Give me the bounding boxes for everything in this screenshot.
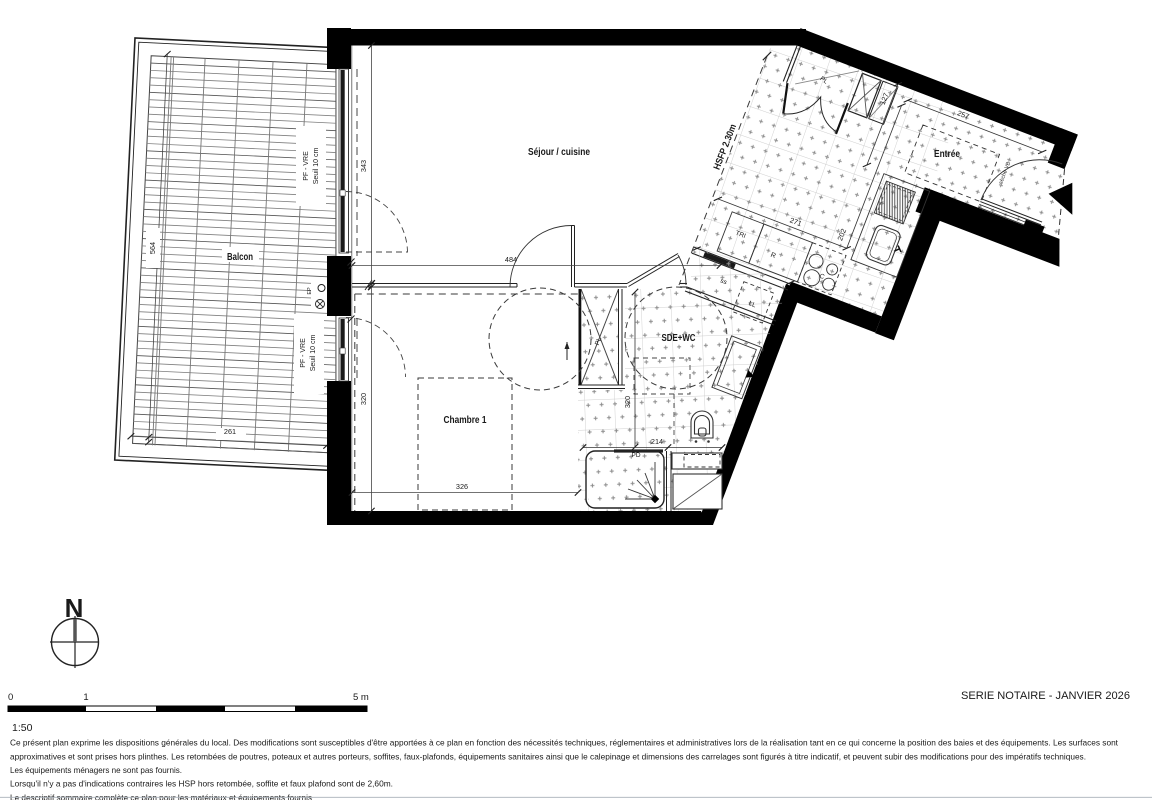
svg-text:Entrée: Entrée	[934, 148, 960, 160]
svg-text:1:50: 1:50	[12, 722, 33, 734]
svg-text:PD: PD	[631, 452, 640, 459]
svg-text:SERIE NOTAIRE - JANVIER 2026: SERIE NOTAIRE - JANVIER 2026	[961, 690, 1130, 702]
svg-text:Lorsqu'il n'y a pas d'indicati: Lorsqu'il n'y a pas d'indications contra…	[10, 779, 393, 789]
svg-text:Séjour / cuisine: Séjour / cuisine	[528, 146, 590, 158]
svg-text:484: 484	[505, 255, 517, 264]
svg-text:N: N	[65, 593, 84, 623]
svg-text:approximatives et sont prises: approximatives et sont prises hors plint…	[10, 752, 1086, 762]
svg-text:PF - VRE: PF - VRE	[300, 338, 307, 368]
svg-text:SDE+WC: SDE+WC	[662, 332, 696, 344]
svg-text:5 m: 5 m	[353, 692, 369, 703]
svg-text:564: 564	[148, 242, 157, 254]
svg-text:PF - VRE: PF - VRE	[303, 151, 310, 181]
svg-text:Seuil 10 cm: Seuil 10 cm	[310, 335, 317, 372]
svg-text:326: 326	[456, 482, 468, 491]
svg-text:320: 320	[623, 396, 632, 408]
svg-text:Ce présent plan exprime les di: Ce présent plan exprime les dispositions…	[10, 738, 1119, 748]
svg-text:Les équipements ménagers ne so: Les équipements ménagers ne sont pas fou…	[10, 765, 182, 775]
svg-text:214: 214	[651, 437, 663, 446]
svg-text:1: 1	[83, 692, 88, 703]
svg-text:0: 0	[8, 692, 13, 703]
svg-text:320: 320	[359, 393, 368, 405]
svg-text:EP: EP	[307, 287, 313, 295]
svg-text:Le descriptif sommaire complèt: Le descriptif sommaire complète ce plan …	[10, 792, 312, 800]
svg-text:Chambre 1: Chambre 1	[444, 414, 487, 426]
svg-text:261: 261	[224, 427, 236, 436]
svg-text:343: 343	[359, 160, 368, 172]
svg-text:Balcon: Balcon	[227, 251, 253, 263]
svg-text:Seuil 10 cm: Seuil 10 cm	[313, 148, 320, 185]
